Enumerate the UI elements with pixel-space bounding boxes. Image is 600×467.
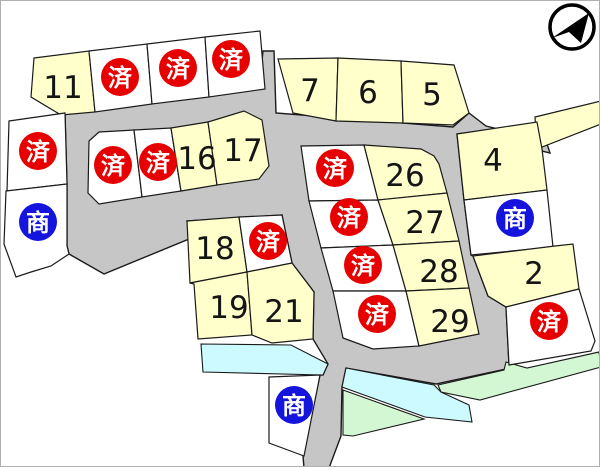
svg-text:商: 商 [503,205,527,233]
svg-text:済: 済 [365,301,390,329]
commercial-badge: 商 [496,199,534,237]
svg-text:商: 商 [282,392,306,420]
lot-18-label: 18 [195,231,234,267]
svg-text:済: 済 [256,228,281,256]
svg-text:済: 済 [108,64,133,92]
svg-text:済: 済 [219,46,244,74]
sold-badge: 済 [101,58,139,96]
svg-text:済: 済 [537,308,562,336]
svg-text:済: 済 [101,152,126,180]
subdivision-lot-map: 11 16 17 7 6 5 4 2 18 19 21 26 27 28 29 … [0,0,600,467]
lot-4-label: 4 [483,143,503,179]
svg-text:済: 済 [337,204,362,232]
svg-text:済: 済 [351,252,376,280]
sold-badge: 済 [159,49,197,87]
lot-26-label: 26 [385,158,424,194]
lot-11-label: 11 [43,70,82,106]
sold-badge: 済 [330,198,368,236]
lot-6-label: 6 [358,75,378,111]
sold-badge: 済 [344,246,382,284]
lot-28-label: 28 [419,254,458,290]
sold-badge: 済 [358,295,396,333]
sold-badge: 済 [530,302,568,340]
lot-16-label: 16 [177,141,216,177]
svg-text:済: 済 [26,138,51,166]
commercial-badge: 商 [19,203,57,241]
lot-2-label: 2 [524,256,544,292]
sold-badge: 済 [249,222,287,260]
lot-19-label: 19 [209,290,248,326]
sold-badge: 済 [212,40,250,78]
lot-5-label: 5 [422,77,442,113]
lot-17-label: 17 [223,133,262,169]
lot-27-label: 27 [405,205,444,241]
lot-7-label: 7 [300,73,320,109]
sold-badge: 済 [19,132,57,170]
lot-21-label: 21 [264,294,303,330]
svg-text:済: 済 [166,55,191,83]
sold-badge: 済 [94,146,132,184]
lot-29-label: 29 [430,304,469,340]
north-compass-icon [550,5,594,49]
svg-text:商: 商 [26,209,50,237]
svg-text:済: 済 [146,149,171,177]
svg-text:済: 済 [323,155,348,183]
sold-badge: 済 [316,149,354,187]
commercial-badge: 商 [275,386,313,424]
sold-badge: 済 [139,143,177,181]
